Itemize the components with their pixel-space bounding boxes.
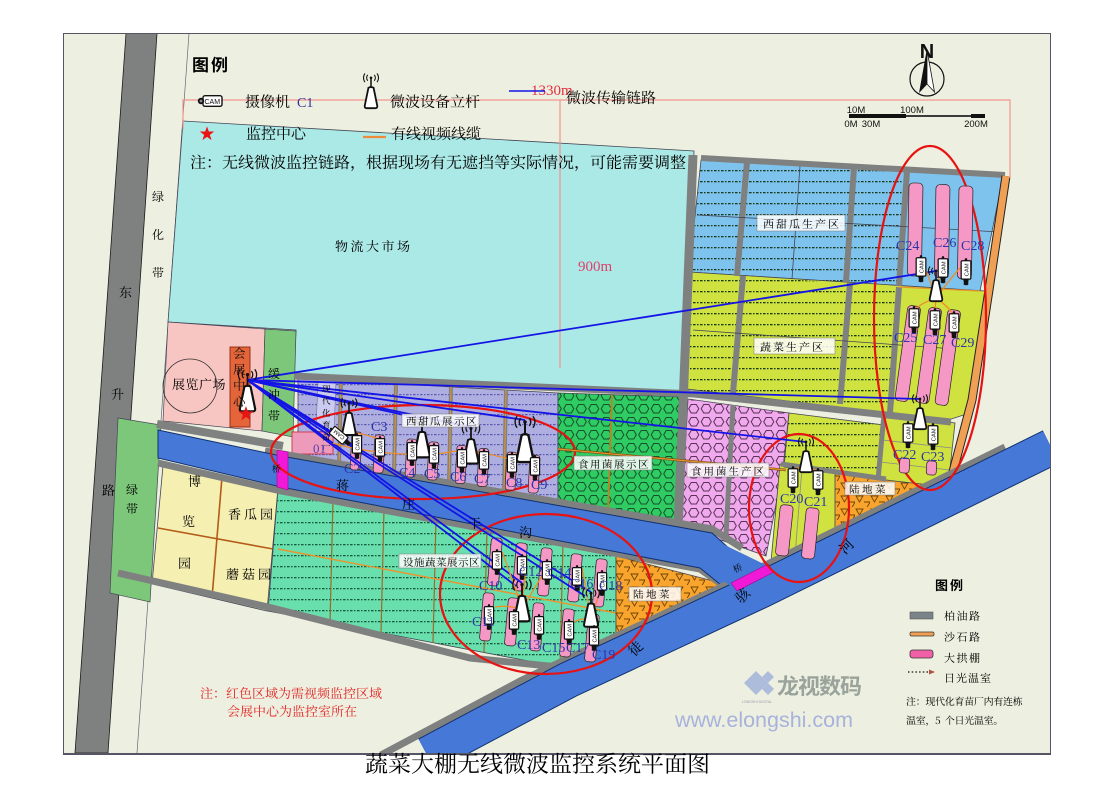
svg-text:C10: C10 (479, 579, 502, 594)
svg-text:C25: C25 (894, 331, 917, 346)
svg-text:C1: C1 (297, 96, 313, 111)
svg-text:C24: C24 (896, 239, 919, 254)
svg-text:C6: C6 (450, 470, 466, 485)
svg-text:C19: C19 (592, 648, 615, 663)
svg-text:C28: C28 (961, 239, 984, 254)
svg-text:C4: C4 (399, 466, 415, 481)
svg-text:C21: C21 (804, 495, 827, 510)
svg-text:C5: C5 (424, 467, 440, 482)
svg-text:C16: C16 (570, 577, 593, 592)
svg-text:C11: C11 (472, 615, 495, 630)
svg-text:C20: C20 (780, 492, 803, 507)
svg-text:C17: C17 (566, 641, 589, 656)
svg-text:C2: C2 (344, 462, 360, 477)
svg-text:900m: 900m (578, 259, 613, 275)
svg-text:C13: C13 (517, 638, 540, 653)
svg-text:C14: C14 (548, 566, 571, 581)
svg-text:C8: C8 (506, 476, 522, 491)
svg-text:C22: C22 (893, 448, 916, 463)
svg-text:LONGSHI DIGITAL: LONGSHI DIGITAL (742, 700, 772, 704)
svg-text:C26: C26 (933, 236, 956, 251)
svg-text:www.elongshi.com: www.elongshi.com (674, 708, 853, 732)
svg-text:C12: C12 (519, 565, 542, 580)
svg-text:C27: C27 (923, 333, 946, 348)
svg-text:C15: C15 (542, 641, 565, 656)
svg-text:C23: C23 (921, 450, 944, 465)
svg-text:0M: 0M (844, 119, 857, 130)
svg-text:C29: C29 (951, 336, 974, 351)
svg-text:200M: 200M (964, 119, 988, 130)
svg-text:C9: C9 (531, 478, 547, 493)
svg-text:C18: C18 (599, 579, 622, 594)
svg-text:30M: 30M (862, 119, 881, 130)
svg-text:C3: C3 (371, 420, 387, 435)
svg-text:C7: C7 (474, 472, 490, 487)
svg-text:01: 01 (313, 441, 326, 456)
